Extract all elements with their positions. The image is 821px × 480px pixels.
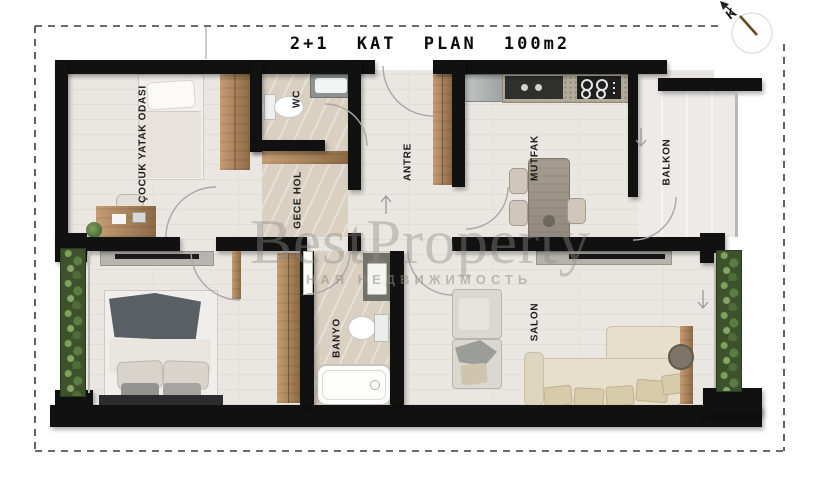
faucet-knob	[521, 84, 528, 91]
wall	[348, 60, 361, 190]
bath-sink-unit	[363, 253, 390, 301]
double-bed	[104, 290, 218, 404]
table-bowl	[543, 215, 555, 227]
compass-needle	[740, 16, 757, 35]
armchair-cushion	[460, 363, 488, 386]
wall	[628, 74, 638, 197]
sofa	[524, 326, 694, 404]
wall	[703, 388, 762, 415]
tv-shelf	[100, 251, 214, 266]
wall	[55, 60, 375, 74]
master-door-leaf	[232, 251, 241, 299]
toilet-tank	[374, 314, 389, 342]
compass-label: K	[723, 4, 740, 22]
wall	[390, 251, 404, 405]
room-label-antre: ANTRE	[403, 143, 414, 181]
wall	[250, 140, 325, 151]
wall	[55, 60, 68, 250]
armchair	[452, 339, 502, 389]
dining-chair	[509, 168, 528, 194]
wall	[452, 237, 712, 251]
kitchen-sink-unit	[505, 76, 563, 99]
room-label-gece-hol: GECE HOL	[293, 171, 304, 229]
wall	[50, 405, 762, 427]
dining-chair	[567, 198, 586, 224]
armchair	[452, 289, 502, 339]
bed-blanket	[109, 293, 201, 341]
room-label-mutfak: MUTFAK	[530, 135, 541, 181]
floor-plan-canvas: ÇOCUK YATAK ODASI WC GECE HOL ANTRE MUTF…	[0, 0, 821, 480]
cooktop	[577, 76, 621, 99]
north-arrowhead	[720, 1, 729, 10]
hall-shelf	[262, 151, 348, 164]
room-label-banyo: BANYO	[332, 318, 343, 358]
tv-screen	[569, 254, 665, 259]
wc-sink	[310, 74, 352, 98]
balcony-floor	[638, 80, 735, 237]
window-glass	[88, 251, 90, 393]
bath-basin	[367, 263, 387, 295]
room-label-wc: WC	[292, 90, 303, 108]
faucet-knob	[535, 84, 542, 91]
toilet-bowl	[348, 316, 376, 340]
wall	[452, 60, 465, 187]
balcony-glass	[735, 91, 738, 237]
wall	[348, 233, 361, 251]
wall	[658, 78, 762, 91]
room-label-cocuk-yatak-odasi: ÇOCUK YATAK ODASI	[138, 85, 149, 203]
wall	[250, 60, 262, 152]
room-label-balkon: BALKON	[662, 139, 673, 186]
bathroom-door-leaf	[303, 251, 313, 295]
desk-laptop	[132, 212, 146, 223]
room-label-salon: SALON	[530, 303, 541, 342]
plant-pot	[86, 222, 102, 238]
burner	[596, 89, 606, 99]
planter-right	[716, 250, 742, 392]
armchair-cushion	[459, 298, 489, 330]
wc-basin	[315, 78, 347, 93]
wardrobe	[220, 73, 250, 170]
tv-shelf	[536, 251, 672, 265]
bathtub	[316, 364, 392, 406]
entry-wardrobe	[433, 64, 452, 185]
side-table	[668, 344, 694, 370]
tv-screen	[115, 254, 199, 259]
sofa-armrest	[524, 352, 544, 406]
north-arrow	[723, 4, 736, 15]
bath-toilet	[348, 314, 388, 340]
planter-left	[60, 248, 86, 397]
master-wardrobe	[277, 253, 300, 403]
cooktop-dots	[613, 80, 615, 94]
plan-title: 2+1 KAT PLAN 100m2	[0, 34, 821, 54]
bathtub-drain	[370, 380, 380, 390]
wall	[433, 60, 667, 74]
pillow	[146, 79, 196, 110]
sofa-pillow	[605, 385, 634, 407]
desk-paper	[112, 214, 126, 224]
armchair-throw	[455, 340, 497, 366]
burner	[581, 89, 591, 99]
wall	[216, 237, 307, 251]
desk	[96, 206, 156, 237]
sofa-pillow	[543, 385, 573, 408]
dining-chair	[509, 200, 528, 226]
